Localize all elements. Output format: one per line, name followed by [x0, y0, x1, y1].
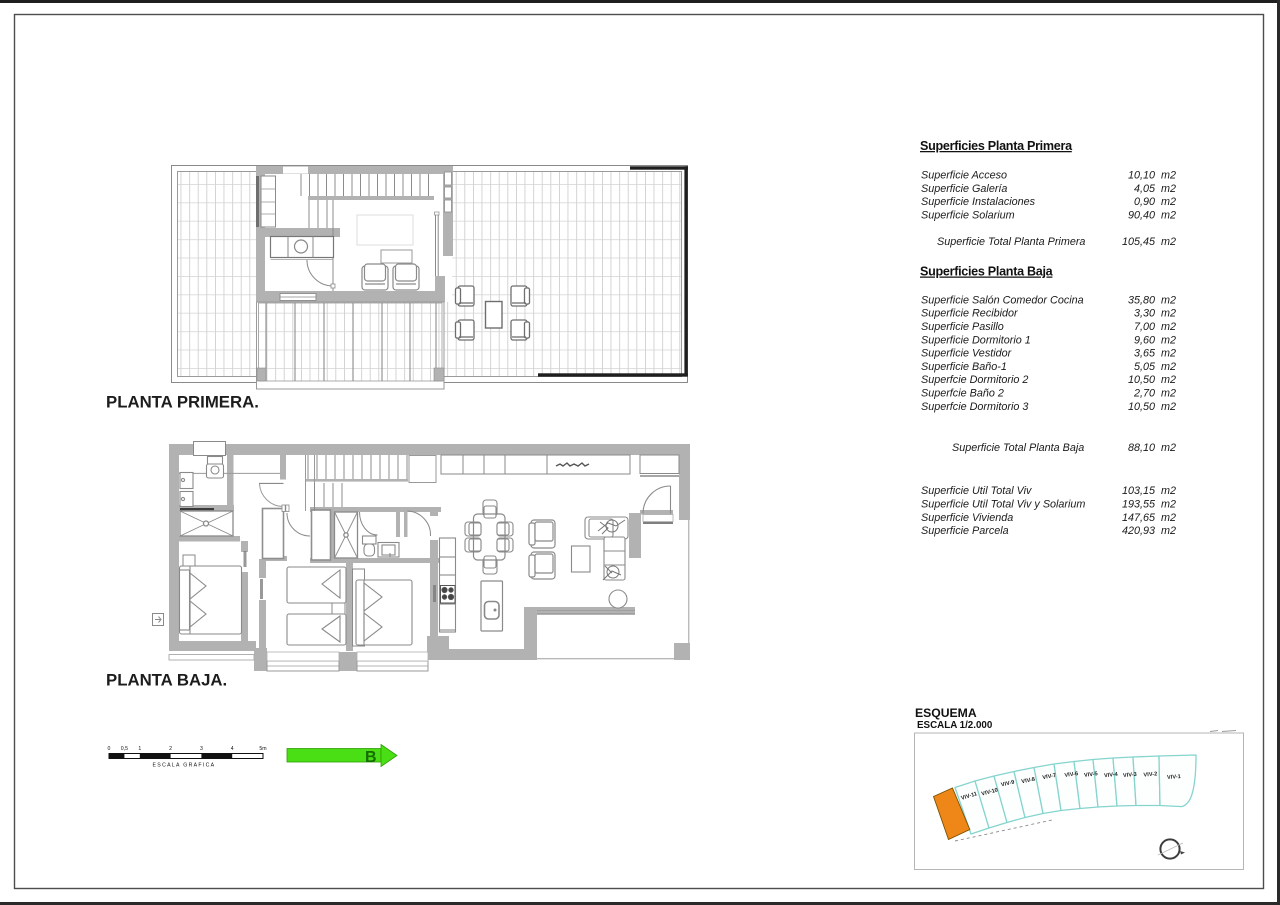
svg-text:Superficie Acceso: Superficie Acceso	[921, 170, 1007, 182]
svg-text:PLANTA BAJA.: PLANTA BAJA.	[106, 671, 227, 690]
svg-text:m2: m2	[1161, 361, 1176, 373]
svg-text:Superficie Recibidor: Superficie Recibidor	[921, 308, 1018, 320]
svg-text:m2: m2	[1161, 308, 1176, 320]
svg-text:ESCALA 1/2.000: ESCALA 1/2.000	[917, 720, 993, 731]
svg-text:m2: m2	[1161, 348, 1176, 360]
svg-text:35,80: 35,80	[1128, 294, 1155, 306]
svg-text:VIV-1: VIV-1	[1167, 774, 1181, 781]
svg-text:m2: m2	[1161, 525, 1176, 537]
svg-text:Superficie Util Total Viv y So: Superficie Util Total Viv y Solarium	[921, 499, 1085, 511]
svg-text:Superficie Pasillo: Superficie Pasillo	[921, 321, 1004, 333]
svg-text:1: 1	[138, 746, 141, 752]
svg-text:PLANTA PRIMERA.: PLANTA PRIMERA.	[106, 393, 259, 412]
svg-text:5,05: 5,05	[1134, 361, 1156, 373]
svg-text:m2: m2	[1161, 388, 1176, 400]
svg-text:Superficie Dormitorio 1: Superficie Dormitorio 1	[921, 334, 1031, 346]
svg-text:m2: m2	[1161, 183, 1176, 195]
svg-text:Superficie Solarium: Superficie Solarium	[921, 210, 1015, 222]
svg-text:m2: m2	[1161, 236, 1176, 248]
svg-text:5m: 5m	[259, 746, 266, 752]
svg-text:Superficies Planta Primera: Superficies Planta Primera	[920, 139, 1073, 153]
svg-text:VIV-3: VIV-3	[1123, 772, 1137, 779]
svg-text:Superfcie Dormitorio 2: Superfcie Dormitorio 2	[921, 374, 1028, 386]
svg-text:420,93: 420,93	[1122, 525, 1155, 537]
svg-text:2,70: 2,70	[1133, 388, 1155, 400]
svg-text:Superficie Instalaciones: Superficie Instalaciones	[921, 196, 1036, 208]
svg-text:90,40: 90,40	[1128, 210, 1155, 222]
svg-text:4,05: 4,05	[1134, 183, 1156, 195]
svg-text:Superficie Total Planta Primer: Superficie Total Planta Primera	[937, 236, 1085, 248]
svg-text:9,60: 9,60	[1134, 334, 1155, 346]
svg-text:m2: m2	[1161, 374, 1176, 386]
svg-text:Superfcie Baño 2: Superfcie Baño 2	[921, 388, 1004, 400]
svg-text:Superficie Util Total Viv: Superficie Util Total Viv	[921, 485, 1032, 497]
svg-text:m2: m2	[1161, 210, 1176, 222]
svg-text:10,50: 10,50	[1128, 401, 1155, 413]
svg-text:Superficie Total Planta Baja: Superficie Total Planta Baja	[952, 442, 1084, 454]
svg-text:Superficie Parcela: Superficie Parcela	[921, 525, 1009, 537]
svg-text:3,65: 3,65	[1134, 348, 1156, 360]
svg-text:m2: m2	[1161, 334, 1176, 346]
svg-text:0,5: 0,5	[121, 746, 128, 752]
svg-text:m2: m2	[1161, 442, 1176, 454]
svg-text:m2: m2	[1161, 170, 1176, 182]
svg-text:193,55: 193,55	[1122, 499, 1156, 511]
svg-text:103,15: 103,15	[1122, 485, 1156, 497]
svg-text:m2: m2	[1161, 321, 1176, 333]
svg-text:Superficie Baño-1: Superficie Baño-1	[921, 361, 1007, 373]
svg-text:10,10: 10,10	[1128, 170, 1155, 182]
svg-text:VIV-2: VIV-2	[1143, 771, 1157, 778]
svg-text:m2: m2	[1161, 401, 1176, 413]
svg-text:Superfcie Dormitorio 3: Superfcie Dormitorio 3	[921, 401, 1028, 413]
svg-text:3: 3	[200, 746, 203, 752]
svg-text:ESCALA GRAFICA: ESCALA GRAFICA	[153, 763, 216, 769]
svg-text:Superficie Vivienda: Superficie Vivienda	[921, 512, 1013, 524]
svg-text:7,00: 7,00	[1134, 321, 1155, 333]
svg-text:4: 4	[231, 746, 234, 752]
svg-text:147,65: 147,65	[1122, 512, 1156, 524]
svg-text:m2: m2	[1161, 512, 1176, 524]
svg-text:m2: m2	[1161, 499, 1176, 511]
svg-text:0: 0	[108, 746, 111, 752]
svg-text:2: 2	[169, 746, 172, 752]
svg-text:10,50: 10,50	[1128, 374, 1155, 386]
svg-text:Superficie Vestidor: Superficie Vestidor	[921, 348, 1012, 360]
svg-text:B: B	[365, 749, 377, 766]
svg-text:m2: m2	[1161, 196, 1176, 208]
svg-text:ESQUEMA: ESQUEMA	[915, 706, 977, 720]
svg-text:Superficie Salón Comedor Cocin: Superficie Salón Comedor Cocina	[921, 294, 1084, 306]
svg-text:3,30: 3,30	[1134, 308, 1155, 320]
svg-text:m2: m2	[1161, 485, 1176, 497]
svg-text:Superficie Galería: Superficie Galería	[921, 183, 1007, 195]
svg-text:Superficies Planta Baja: Superficies Planta Baja	[920, 265, 1054, 279]
svg-text:88,10: 88,10	[1128, 442, 1155, 454]
svg-text:105,45: 105,45	[1122, 236, 1156, 248]
svg-text:m2: m2	[1161, 294, 1176, 306]
svg-text:0,90: 0,90	[1134, 196, 1155, 208]
